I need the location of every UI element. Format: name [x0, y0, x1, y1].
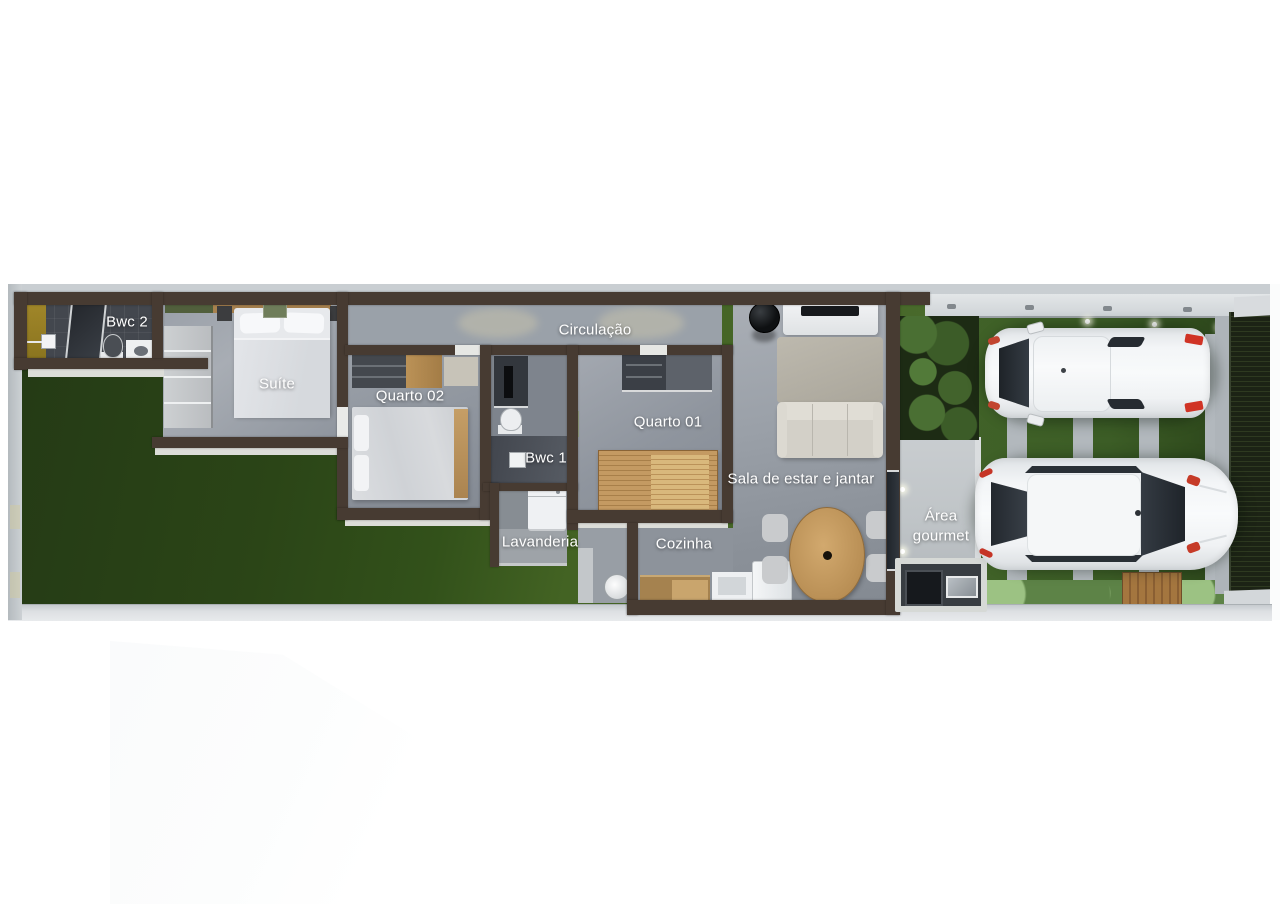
room-label-bwc2: Bwc 2 [106, 314, 148, 331]
quarto01-wardrobe [622, 352, 712, 392]
car-sedan [975, 458, 1238, 570]
car-roof [1033, 336, 1111, 412]
street-edge [1270, 284, 1280, 620]
sala-west-wall [722, 345, 733, 523]
hallway-light-pool [458, 308, 538, 338]
sofa [777, 402, 883, 458]
hallway-floor [348, 304, 722, 346]
suite-quarto02-spine [337, 292, 348, 520]
top-boundary-wall [925, 294, 1272, 318]
soft-shadow-blob [110, 630, 650, 904]
quarto01-bed-wood-slats [598, 450, 718, 516]
bed-foot-bench [454, 409, 468, 498]
room-label-lavanderia: Lavanderia [502, 534, 578, 551]
wall-clip-mark [1103, 306, 1112, 311]
car-side-glass [1025, 555, 1143, 562]
glass-sliding-door [887, 470, 899, 571]
barbecue-grill [905, 570, 943, 606]
sofa-seam [812, 404, 813, 456]
room-label-circulacao: Circulação [559, 322, 632, 339]
living-rug [777, 337, 883, 403]
lavanderia-counter [499, 487, 528, 529]
washing-machine [528, 487, 566, 531]
bwc2-suite-divider [152, 292, 163, 358]
bwc1-shower [494, 356, 528, 408]
quarto02-south-wall [337, 508, 490, 520]
wardrobe-edge [211, 326, 213, 428]
suite-wardrobe [164, 326, 213, 428]
wardrobe-shelf [164, 376, 213, 378]
gourmet-sink [946, 576, 978, 598]
house-south-wall [627, 600, 900, 615]
room-label-sala: Sala de estar e jantar [728, 471, 875, 488]
cooktop-surface [718, 577, 746, 595]
sofa-arm [777, 402, 787, 458]
service-path [578, 548, 593, 603]
suite-south-wall [152, 437, 348, 448]
quarto01-door-opening [640, 345, 667, 355]
car-suv [985, 328, 1210, 418]
quarto01-south-face [578, 523, 728, 528]
pillow [354, 455, 369, 491]
car-side-glass [1025, 466, 1143, 473]
wardrobe-shelf [626, 376, 662, 378]
dining-chair [762, 514, 788, 542]
bwc2-accent-wall [27, 304, 46, 360]
bwc1-sink [509, 452, 526, 468]
pillow [354, 415, 369, 451]
room-label-cozinha: Cozinha [656, 536, 712, 553]
bwc2-toilet [103, 334, 123, 358]
car-wiper-dot [1135, 510, 1141, 516]
wardrobe-shelf [164, 402, 213, 404]
service-yard-floor [578, 523, 627, 603]
pillow [284, 312, 325, 333]
lavanderia-west-wall [490, 483, 499, 567]
bwc1-toilet [500, 408, 522, 431]
dining-chair [762, 556, 788, 584]
room-label-quarto02: Quarto 02 [376, 388, 445, 405]
wall-clip-mark [947, 304, 956, 309]
table-centerpiece [823, 551, 832, 560]
sofa-seam [847, 404, 848, 456]
wardrobe-shelf [164, 350, 213, 352]
car-rear-side-glass [1106, 337, 1145, 347]
shower-fixture [504, 366, 513, 398]
quarto02-south-face [345, 520, 491, 526]
floor-plan-render: Bwc 2 Suíte Quarto 02 Bwc 1 Circulação Q… [0, 0, 1280, 904]
washer-lid-line [528, 496, 566, 497]
quarto01-south-wall [567, 510, 733, 523]
suite-bed [234, 308, 330, 416]
wardrobe-shelf [352, 365, 406, 367]
car-antenna [1061, 368, 1066, 373]
kitchen-cooktop [712, 572, 752, 603]
room-label-suite: Suíte [259, 376, 295, 393]
wall-light-tint [10, 505, 20, 529]
car-roof [1027, 474, 1141, 556]
car-rear-side-glass [1106, 399, 1145, 409]
suite-ac-unit [263, 304, 287, 318]
bwc2-wall-niche [41, 334, 56, 349]
plant-pot [749, 302, 780, 333]
suite-south-face [155, 448, 347, 455]
bwc2-south-wall [14, 358, 208, 369]
quarto02-bed [352, 407, 468, 500]
quarto01-west-wall [567, 345, 578, 530]
hallway-south-wall [345, 345, 733, 355]
wardrobe-shelf [626, 364, 662, 366]
sofa-back [777, 402, 883, 420]
suite-nightstand [217, 306, 232, 321]
room-label-quarto01: Quarto 01 [634, 414, 703, 431]
patio-downlight [900, 487, 905, 492]
room-label-bwc1: Bwc 1 [525, 450, 567, 467]
room-label-area-gourmet: Área gourmet [908, 507, 974, 546]
wardrobe-dark-section [622, 352, 666, 390]
quarto02-wardrobe-wood [406, 355, 442, 388]
wall-clip-mark [1183, 307, 1192, 312]
bed-blanket [651, 455, 709, 511]
patio-downlight [900, 549, 905, 554]
dining-table [789, 507, 865, 603]
tv-screen [801, 306, 859, 316]
niche-leader-line [25, 341, 42, 343]
sofa-arm [873, 402, 883, 458]
wardrobe-shelf [352, 376, 406, 378]
side-garden-bushes [899, 316, 979, 440]
quarto02-wardrobe-dark [352, 355, 406, 388]
quarto02-window [337, 407, 348, 440]
wall-clip-mark [1025, 305, 1034, 310]
quarto02-door-opening [455, 345, 482, 355]
wall-light-tint [10, 572, 20, 598]
tv-console [783, 302, 878, 335]
bwc2-sink-bowl [134, 346, 148, 356]
quarto02-bench [444, 357, 478, 386]
car-windshield [999, 337, 1029, 409]
